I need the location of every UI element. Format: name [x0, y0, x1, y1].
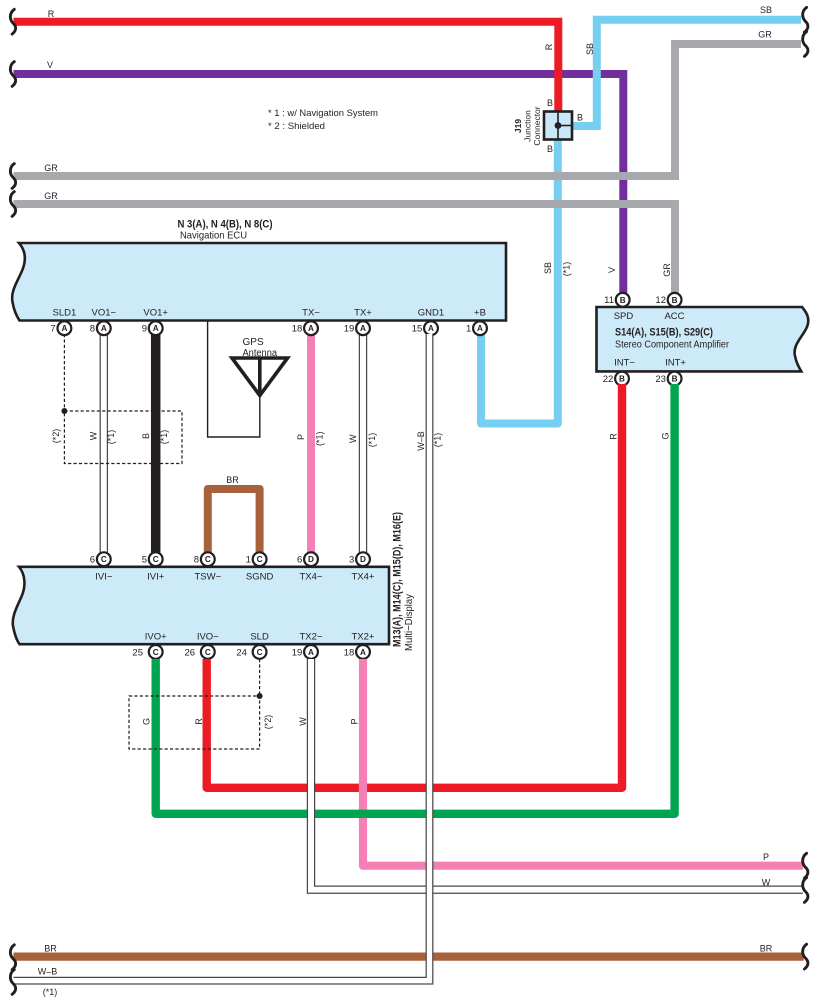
svg-text:(*1): (*1): [433, 433, 443, 448]
svg-text:W: W: [298, 717, 308, 726]
svg-text:SB: SB: [760, 5, 772, 15]
svg-text:B: B: [672, 296, 678, 305]
svg-text:1: 1: [466, 324, 471, 335]
svg-text:+B: +B: [474, 308, 486, 319]
svg-text:W–B: W–B: [38, 967, 58, 977]
svg-text:R: R: [194, 718, 204, 725]
svg-text:(*1): (*1): [315, 431, 325, 446]
svg-text:W: W: [762, 878, 771, 888]
svg-text:SLD1: SLD1: [53, 308, 77, 319]
svg-text:C: C: [257, 648, 263, 657]
svg-text:G: G: [142, 718, 152, 725]
svg-text:P: P: [350, 718, 360, 724]
svg-text:26: 26: [185, 647, 196, 658]
svg-text:TX−: TX−: [302, 308, 320, 319]
svg-text:GR: GR: [662, 263, 672, 277]
svg-text:8: 8: [90, 324, 95, 335]
svg-text:B: B: [577, 113, 583, 123]
svg-text:(*2): (*2): [263, 715, 273, 730]
svg-text:A: A: [360, 324, 366, 333]
svg-text:J19: J19: [513, 119, 523, 133]
svg-text:(*1): (*1): [159, 430, 169, 445]
svg-text:W: W: [89, 431, 99, 440]
svg-text:C: C: [205, 555, 211, 564]
svg-text:IVO−: IVO−: [197, 632, 219, 643]
svg-text:19: 19: [292, 647, 303, 658]
svg-text:B: B: [620, 296, 626, 305]
svg-text:GR: GR: [758, 30, 772, 40]
svg-text:(*1): (*1): [562, 262, 572, 277]
svg-text:A: A: [428, 324, 434, 333]
svg-text:(*1): (*1): [367, 433, 377, 448]
svg-text:Junction: Junction: [523, 110, 533, 142]
svg-text:A: A: [61, 324, 67, 333]
svg-text:INT−: INT−: [614, 358, 635, 369]
svg-text:M13(A), M14(C), M15(D), M16(E): M13(A), M14(C), M15(D), M16(E): [392, 512, 404, 647]
svg-text:B: B: [672, 375, 678, 384]
svg-text:TX4+: TX4+: [352, 572, 375, 583]
svg-text:VO1+: VO1+: [143, 308, 168, 319]
svg-text:IVO+: IVO+: [145, 632, 167, 643]
svg-text:SPD: SPD: [614, 311, 634, 322]
svg-text:TX+: TX+: [354, 308, 372, 319]
svg-text:Multi−Display: Multi−Display: [403, 593, 415, 651]
svg-text:B: B: [547, 98, 553, 108]
svg-text:V: V: [607, 267, 617, 273]
svg-text:11: 11: [604, 295, 614, 306]
svg-text:GPS: GPS: [243, 337, 264, 348]
svg-text:VO1−: VO1−: [92, 308, 117, 319]
svg-text:C: C: [101, 555, 107, 564]
svg-text:R: R: [609, 433, 619, 440]
svg-text:D: D: [360, 555, 366, 564]
svg-text:(*1): (*1): [43, 987, 58, 997]
svg-text:19: 19: [344, 324, 355, 335]
svg-text:GND1: GND1: [418, 308, 444, 319]
svg-text:* 1 : w/ Navigation System: * 1 : w/ Navigation System: [268, 108, 378, 118]
svg-text:BR: BR: [760, 944, 773, 954]
svg-text:SB: SB: [585, 43, 595, 55]
svg-text:24: 24: [236, 647, 247, 658]
svg-text:5: 5: [142, 555, 147, 566]
svg-text:12: 12: [655, 295, 666, 306]
svg-text:D: D: [308, 555, 314, 564]
svg-text:SB: SB: [543, 262, 553, 274]
svg-text:A: A: [101, 324, 107, 333]
svg-text:R: R: [544, 43, 554, 50]
svg-text:A: A: [308, 648, 314, 657]
svg-text:Antenna: Antenna: [243, 348, 278, 359]
svg-text:B: B: [141, 433, 151, 439]
svg-text:25: 25: [132, 647, 143, 658]
svg-text:23: 23: [655, 374, 666, 385]
svg-text:IVI+: IVI+: [147, 572, 165, 583]
svg-text:P: P: [763, 852, 769, 862]
svg-text:B: B: [619, 375, 625, 384]
svg-text:G: G: [660, 432, 670, 439]
svg-text:TSW−: TSW−: [194, 572, 221, 583]
svg-text:22: 22: [603, 374, 614, 385]
svg-text:SGND: SGND: [246, 572, 274, 583]
svg-text:INT+: INT+: [665, 358, 686, 369]
svg-text:(*2): (*2): [51, 429, 61, 444]
svg-text:IVI−: IVI−: [95, 572, 113, 583]
svg-text:P: P: [296, 434, 306, 440]
svg-text:C: C: [153, 648, 159, 657]
svg-text:A: A: [477, 324, 483, 333]
svg-text:18: 18: [292, 324, 303, 335]
svg-text:SLD: SLD: [250, 632, 269, 643]
svg-text:W–B: W–B: [416, 431, 426, 451]
svg-text:BR: BR: [44, 944, 57, 954]
svg-text:6: 6: [297, 555, 302, 566]
svg-text:W: W: [348, 434, 358, 443]
svg-text:A: A: [360, 648, 366, 657]
svg-text:BR: BR: [226, 475, 239, 485]
svg-text:18: 18: [344, 647, 355, 658]
svg-text:A: A: [308, 324, 314, 333]
svg-text:TX2+: TX2+: [352, 632, 375, 643]
svg-text:7: 7: [50, 324, 55, 335]
svg-text:1: 1: [246, 555, 251, 566]
svg-text:3: 3: [349, 555, 354, 566]
svg-text:C: C: [205, 648, 211, 657]
svg-text:S14(A), S15(B), S29(C): S14(A), S15(B), S29(C): [615, 327, 713, 339]
svg-text:ACC: ACC: [664, 311, 684, 322]
svg-text:B: B: [547, 144, 553, 154]
svg-text:C: C: [153, 555, 159, 564]
svg-text:8: 8: [194, 555, 199, 566]
svg-text:9: 9: [142, 324, 147, 335]
svg-text:Connector: Connector: [532, 106, 542, 145]
svg-text:* 2 : Shielded: * 2 : Shielded: [268, 121, 325, 131]
svg-text:C: C: [257, 555, 263, 564]
svg-text:(*1): (*1): [106, 430, 116, 445]
svg-text:GR: GR: [44, 163, 58, 173]
svg-text:TX2−: TX2−: [300, 632, 323, 643]
svg-text:A: A: [153, 324, 159, 333]
svg-text:V: V: [47, 60, 53, 70]
svg-text:Stereo Component Amplifier: Stereo Component Amplifier: [615, 339, 729, 351]
svg-text:15: 15: [412, 324, 423, 335]
svg-text:Navigation ECU: Navigation ECU: [180, 230, 247, 242]
svg-text:6: 6: [90, 555, 95, 566]
svg-text:GR: GR: [44, 191, 58, 201]
svg-text:R: R: [48, 9, 55, 19]
svg-text:TX4−: TX4−: [300, 572, 323, 583]
